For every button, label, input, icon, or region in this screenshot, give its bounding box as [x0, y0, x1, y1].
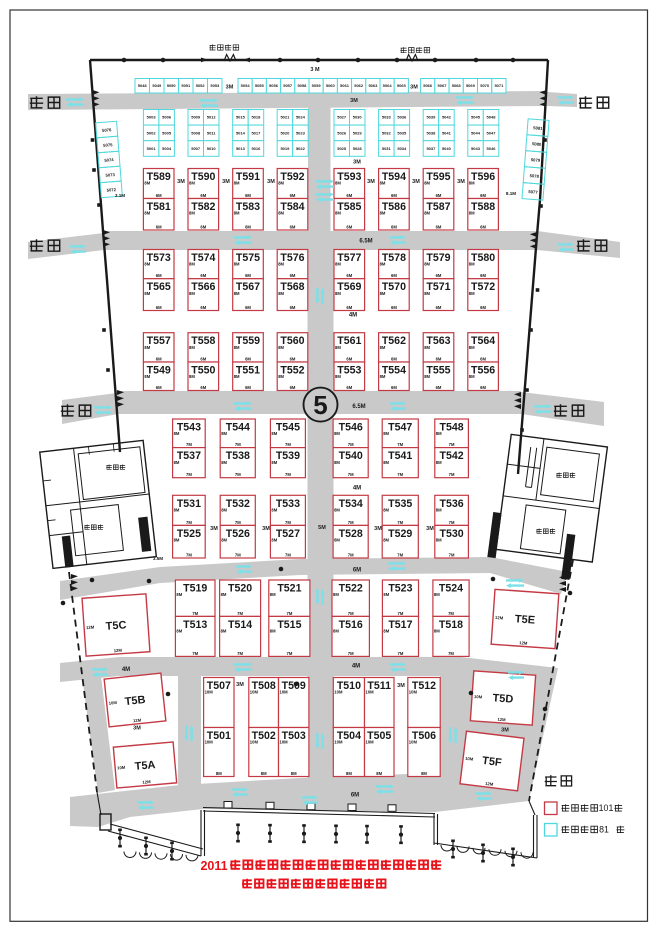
- svg-text:T540: T540: [339, 450, 363, 462]
- svg-text:3M: 3M: [374, 526, 382, 532]
- svg-text:5056: 5056: [269, 83, 279, 88]
- svg-text:6M: 6M: [245, 225, 251, 230]
- svg-text:7M: 7M: [286, 611, 292, 616]
- svg-text:8M: 8M: [469, 374, 475, 379]
- svg-text:6M: 6M: [391, 385, 397, 390]
- svg-text:5019: 5019: [280, 146, 290, 151]
- svg-text:4M: 4M: [122, 667, 130, 673]
- svg-text:5042: 5042: [442, 115, 452, 120]
- svg-text:7M: 7M: [397, 651, 403, 656]
- svg-text:3M: 3M: [210, 526, 218, 532]
- svg-text:8M: 8M: [278, 262, 284, 267]
- svg-text:5045: 5045: [471, 115, 481, 120]
- svg-text:8M: 8M: [380, 374, 386, 379]
- svg-text:8M: 8M: [383, 538, 389, 543]
- svg-text:8M: 8M: [261, 771, 267, 776]
- svg-text:T516: T516: [339, 619, 363, 631]
- svg-text:6M: 6M: [346, 273, 352, 278]
- svg-text:5014: 5014: [236, 130, 246, 135]
- svg-text:T576: T576: [280, 252, 304, 264]
- svg-text:7M: 7M: [285, 442, 291, 447]
- svg-text:4M: 4M: [349, 313, 357, 319]
- svg-text:5032: 5032: [382, 130, 392, 135]
- svg-text:7M: 7M: [285, 472, 291, 477]
- svg-text:8M: 8M: [424, 181, 430, 186]
- svg-text:8M: 8M: [469, 262, 475, 267]
- svg-text:10M: 10M: [250, 740, 259, 745]
- svg-text:6M: 6M: [200, 385, 206, 390]
- svg-text:8M: 8M: [334, 538, 340, 543]
- svg-text:T571: T571: [426, 281, 450, 293]
- svg-text:7M: 7M: [448, 651, 454, 656]
- svg-text:5063: 5063: [368, 83, 378, 88]
- svg-text:T533: T533: [276, 498, 300, 510]
- svg-text:T581: T581: [147, 201, 171, 213]
- svg-text:6M: 6M: [290, 385, 296, 390]
- svg-text:3M: 3M: [262, 526, 270, 532]
- svg-text:3M: 3M: [267, 179, 275, 185]
- svg-text:6M: 6M: [391, 193, 397, 198]
- svg-text:5053: 5053: [210, 83, 220, 88]
- svg-text:T5E: T5E: [514, 613, 535, 626]
- svg-text:8M: 8M: [335, 211, 341, 216]
- svg-text:8M: 8M: [270, 592, 276, 597]
- svg-text:8M: 8M: [189, 262, 195, 267]
- svg-text:5039: 5039: [426, 115, 436, 120]
- svg-text:T549: T549: [147, 365, 171, 377]
- svg-text:T587: T587: [426, 201, 450, 213]
- svg-text:5: 5: [313, 390, 327, 420]
- svg-text:8M: 8M: [144, 211, 150, 216]
- svg-text:5031: 5031: [382, 146, 392, 151]
- svg-text:5023: 5023: [296, 130, 306, 135]
- svg-text:7M: 7M: [237, 651, 243, 656]
- svg-text:7M: 7M: [348, 553, 354, 558]
- svg-text:8M: 8M: [434, 592, 440, 597]
- svg-text:10M: 10M: [280, 740, 289, 745]
- svg-text:5007: 5007: [191, 146, 201, 151]
- svg-text:5062: 5062: [354, 83, 364, 88]
- svg-text:5069: 5069: [466, 83, 476, 88]
- svg-text:T575: T575: [236, 252, 260, 264]
- svg-text:8M: 8M: [189, 345, 195, 350]
- svg-text:6M: 6M: [391, 225, 397, 230]
- svg-text:7M: 7M: [186, 520, 192, 525]
- svg-text:T546: T546: [339, 422, 363, 434]
- svg-text:4M: 4M: [352, 664, 360, 670]
- svg-text:8M: 8M: [424, 374, 430, 379]
- svg-text:T528: T528: [339, 528, 363, 540]
- svg-text:8M: 8M: [234, 374, 240, 379]
- svg-text:T558: T558: [191, 335, 215, 347]
- svg-text:8M: 8M: [271, 508, 277, 513]
- svg-text:5059: 5059: [312, 83, 322, 88]
- svg-text:8M: 8M: [424, 345, 430, 350]
- svg-text:8M: 8M: [334, 508, 340, 513]
- svg-text:8M: 8M: [469, 345, 475, 350]
- svg-text:7M: 7M: [235, 553, 241, 558]
- svg-text:7M: 7M: [449, 442, 455, 447]
- svg-text:T524: T524: [439, 583, 463, 595]
- svg-text:5003: 5003: [147, 115, 157, 120]
- svg-text:T518: T518: [439, 619, 463, 631]
- svg-text:10M: 10M: [334, 740, 343, 745]
- svg-text:5077: 5077: [528, 189, 538, 195]
- svg-text:8M: 8M: [271, 538, 277, 543]
- svg-text:T5C: T5C: [105, 619, 127, 632]
- svg-text:T594: T594: [382, 171, 406, 183]
- svg-text:8M: 8M: [291, 771, 297, 776]
- svg-text:5072: 5072: [106, 187, 116, 193]
- svg-text:7M: 7M: [186, 553, 192, 558]
- svg-text:5038: 5038: [426, 130, 436, 135]
- svg-text:T539: T539: [276, 450, 300, 462]
- svg-text:T541: T541: [388, 450, 412, 462]
- svg-text:8M: 8M: [144, 291, 150, 296]
- svg-text:T544: T544: [226, 422, 250, 434]
- svg-text:T563: T563: [426, 335, 450, 347]
- svg-text:6M: 6M: [346, 225, 352, 230]
- svg-text:5035: 5035: [397, 130, 407, 135]
- svg-text:8M: 8M: [221, 431, 227, 436]
- svg-text:6M: 6M: [436, 273, 442, 278]
- svg-text:10M: 10M: [205, 690, 214, 695]
- svg-text:5026: 5026: [337, 130, 347, 135]
- svg-text:7M: 7M: [235, 472, 241, 477]
- svg-text:8M: 8M: [189, 374, 195, 379]
- svg-text:5002: 5002: [147, 130, 157, 135]
- svg-text:T595: T595: [426, 171, 450, 183]
- svg-text:6M: 6M: [436, 357, 442, 362]
- svg-text:5013: 5013: [236, 146, 246, 151]
- svg-text:T574: T574: [191, 252, 215, 264]
- svg-text:8M: 8M: [380, 211, 386, 216]
- svg-text:5041: 5041: [442, 130, 452, 135]
- svg-text:T521: T521: [277, 583, 301, 595]
- svg-text:10M: 10M: [465, 756, 474, 762]
- svg-text:T526: T526: [226, 528, 250, 540]
- svg-text:5050: 5050: [167, 83, 177, 88]
- svg-text:101: 101: [599, 803, 614, 813]
- svg-text:5004: 5004: [162, 146, 172, 151]
- svg-text:5060: 5060: [326, 83, 336, 88]
- svg-text:T532: T532: [226, 498, 250, 510]
- svg-text:8M: 8M: [174, 460, 180, 465]
- svg-text:T583: T583: [236, 201, 260, 213]
- svg-text:12M: 12M: [133, 717, 142, 723]
- svg-text:T567: T567: [236, 281, 260, 293]
- svg-text:T554: T554: [382, 365, 406, 377]
- svg-text:8M: 8M: [380, 291, 386, 296]
- svg-text:8M: 8M: [380, 181, 386, 186]
- svg-text:5022: 5022: [296, 146, 306, 151]
- svg-text:7M: 7M: [192, 611, 198, 616]
- svg-text:81: 81: [599, 825, 609, 835]
- svg-text:T570: T570: [382, 281, 406, 293]
- svg-text:T559: T559: [236, 335, 260, 347]
- svg-text:T565: T565: [147, 281, 171, 293]
- svg-text:3M: 3M: [236, 682, 244, 688]
- svg-text:6M: 6M: [480, 273, 486, 278]
- svg-text:5052: 5052: [196, 83, 206, 88]
- svg-text:8M: 8M: [380, 345, 386, 350]
- svg-text:T527: T527: [276, 528, 300, 540]
- svg-text:T580: T580: [471, 252, 495, 264]
- svg-text:8M: 8M: [424, 291, 430, 296]
- svg-text:T543: T543: [177, 422, 201, 434]
- svg-text:5016: 5016: [251, 146, 261, 151]
- svg-text:7M: 7M: [397, 611, 403, 616]
- svg-text:6M: 6M: [346, 305, 352, 310]
- svg-text:8M: 8M: [436, 508, 442, 513]
- svg-text:T534: T534: [339, 498, 363, 510]
- svg-text:5009: 5009: [191, 115, 201, 120]
- svg-text:T552: T552: [280, 365, 304, 377]
- svg-text:T536: T536: [440, 498, 464, 510]
- svg-text:8M: 8M: [189, 291, 195, 296]
- svg-text:6M: 6M: [480, 305, 486, 310]
- svg-text:8M: 8M: [189, 181, 195, 186]
- svg-text:5005: 5005: [162, 130, 172, 135]
- svg-text:8M: 8M: [335, 181, 341, 186]
- svg-text:5080: 5080: [532, 141, 542, 147]
- svg-text:5018: 5018: [251, 115, 261, 120]
- svg-text:10M: 10M: [334, 690, 343, 695]
- svg-text:5058: 5058: [297, 83, 307, 88]
- svg-text:8M: 8M: [424, 262, 430, 267]
- svg-text:7M: 7M: [448, 611, 454, 616]
- svg-text:12M: 12M: [114, 648, 123, 654]
- svg-text:5025: 5025: [337, 146, 347, 151]
- svg-text:7M: 7M: [192, 651, 198, 656]
- svg-text:5051: 5051: [181, 83, 191, 88]
- svg-text:6M: 6M: [156, 385, 162, 390]
- svg-text:T579: T579: [426, 252, 450, 264]
- svg-text:8M: 8M: [335, 262, 341, 267]
- svg-text:8M: 8M: [436, 460, 442, 465]
- svg-text:4M: 4M: [353, 486, 361, 492]
- svg-text:T560: T560: [280, 335, 304, 347]
- svg-text:7M: 7M: [397, 442, 403, 447]
- svg-text:5044: 5044: [471, 130, 481, 135]
- svg-text:5071: 5071: [494, 83, 504, 88]
- svg-text:3M: 3M: [397, 683, 405, 689]
- svg-text:T564: T564: [471, 335, 495, 347]
- svg-text:5049: 5049: [152, 83, 162, 88]
- svg-text:7M: 7M: [235, 520, 241, 525]
- svg-text:12M: 12M: [497, 717, 506, 723]
- svg-text:8M: 8M: [278, 291, 284, 296]
- svg-text:5075: 5075: [103, 142, 113, 148]
- svg-text:10M: 10M: [366, 690, 375, 695]
- svg-text:T592: T592: [280, 171, 304, 183]
- svg-text:6M: 6M: [290, 193, 296, 198]
- svg-text:5030: 5030: [353, 115, 363, 120]
- svg-text:6M: 6M: [436, 305, 442, 310]
- svg-text:6M: 6M: [436, 193, 442, 198]
- svg-text:3M: 3M: [133, 726, 141, 732]
- svg-text:3M: 3M: [412, 179, 420, 185]
- svg-text:8M: 8M: [469, 291, 475, 296]
- svg-text:8M: 8M: [234, 291, 240, 296]
- svg-text:8M: 8M: [221, 538, 227, 543]
- svg-text:T553: T553: [337, 365, 361, 377]
- svg-text:3 M: 3 M: [310, 67, 320, 73]
- svg-text:T550: T550: [191, 365, 215, 377]
- svg-text:8M: 8M: [421, 771, 427, 776]
- svg-text:5076: 5076: [102, 127, 112, 133]
- svg-text:8.1M: 8.1M: [506, 191, 516, 196]
- svg-text:6M: 6M: [391, 305, 397, 310]
- svg-text:T593: T593: [337, 171, 361, 183]
- svg-text:8M: 8M: [436, 538, 442, 543]
- svg-text:3M: 3M: [177, 179, 185, 185]
- svg-text:T531: T531: [177, 498, 201, 510]
- svg-text:6M: 6M: [156, 225, 162, 230]
- svg-text:5070: 5070: [480, 83, 490, 88]
- svg-text:5017: 5017: [251, 130, 261, 135]
- svg-text:8M: 8M: [383, 508, 389, 513]
- svg-text:6M: 6M: [200, 193, 206, 198]
- svg-text:5057: 5057: [283, 83, 293, 88]
- svg-text:12M: 12M: [142, 779, 151, 785]
- svg-text:T547: T547: [388, 422, 412, 434]
- svg-text:T572: T572: [471, 281, 495, 293]
- svg-text:8M: 8M: [234, 262, 240, 267]
- svg-text:3M: 3M: [367, 179, 375, 185]
- svg-text:7M: 7M: [186, 472, 192, 477]
- svg-text:6M: 6M: [245, 305, 251, 310]
- svg-text:8M: 8M: [221, 592, 227, 597]
- svg-text:6M: 6M: [200, 273, 206, 278]
- svg-text:T542: T542: [440, 450, 464, 462]
- svg-text:7M: 7M: [449, 553, 455, 558]
- svg-text:6M: 6M: [290, 305, 296, 310]
- svg-text:5021: 5021: [280, 115, 290, 120]
- svg-text:10M: 10M: [474, 694, 483, 700]
- svg-text:5033: 5033: [382, 115, 392, 120]
- svg-text:T590: T590: [191, 171, 215, 183]
- svg-text:7M: 7M: [348, 442, 354, 447]
- svg-text:T568: T568: [280, 281, 304, 293]
- svg-text:7M: 7M: [397, 520, 403, 525]
- svg-text:T517: T517: [388, 619, 412, 631]
- svg-text:T5B: T5B: [124, 694, 146, 708]
- svg-text:5001: 5001: [147, 146, 157, 151]
- svg-text:T520: T520: [228, 583, 252, 595]
- svg-text:6M: 6M: [200, 225, 206, 230]
- svg-text:12M: 12M: [485, 781, 494, 787]
- svg-text:8M: 8M: [346, 771, 352, 776]
- svg-text:5024: 5024: [296, 115, 306, 120]
- svg-text:6M: 6M: [290, 273, 296, 278]
- svg-text:6M: 6M: [156, 193, 162, 198]
- svg-text:8M: 8M: [221, 508, 227, 513]
- svg-text:8M: 8M: [376, 771, 382, 776]
- svg-text:5074: 5074: [104, 157, 114, 163]
- svg-text:8M: 8M: [174, 538, 180, 543]
- svg-text:7M: 7M: [348, 611, 354, 616]
- svg-text:8M: 8M: [234, 345, 240, 350]
- svg-text:5006: 5006: [162, 115, 172, 120]
- svg-text:8M: 8M: [174, 508, 180, 513]
- svg-text:8M: 8M: [278, 211, 284, 216]
- svg-text:T588: T588: [471, 201, 495, 213]
- svg-text:7M: 7M: [348, 651, 354, 656]
- svg-text:6M: 6M: [245, 385, 251, 390]
- svg-text:8M: 8M: [383, 592, 389, 597]
- svg-text:T537: T537: [177, 450, 201, 462]
- svg-text:8M: 8M: [271, 460, 277, 465]
- svg-text:T515: T515: [277, 619, 301, 631]
- svg-text:6.5M: 6.5M: [352, 404, 365, 410]
- svg-text:8M: 8M: [335, 291, 341, 296]
- svg-text:8M: 8M: [424, 211, 430, 216]
- svg-text:T562: T562: [382, 335, 406, 347]
- svg-text:6M: 6M: [351, 793, 359, 799]
- svg-text:8M: 8M: [334, 460, 340, 465]
- svg-text:10M: 10M: [280, 690, 289, 695]
- svg-text:5027: 5027: [337, 115, 347, 120]
- svg-text:T591: T591: [236, 171, 260, 183]
- svg-text:7M: 7M: [285, 553, 291, 558]
- svg-text:5055: 5055: [255, 83, 265, 88]
- svg-text:3M: 3M: [226, 85, 234, 91]
- svg-text:T545: T545: [276, 422, 300, 434]
- svg-text:3M: 3M: [457, 179, 465, 185]
- svg-text:T530: T530: [440, 528, 464, 540]
- svg-text:6M: 6M: [391, 273, 397, 278]
- svg-text:7M: 7M: [397, 472, 403, 477]
- svg-text:T523: T523: [388, 583, 412, 595]
- svg-text:6M: 6M: [346, 357, 352, 362]
- svg-text:5040: 5040: [442, 146, 452, 151]
- svg-text:6M: 6M: [346, 193, 352, 198]
- svg-text:T589: T589: [147, 171, 171, 183]
- svg-text:8M: 8M: [221, 460, 227, 465]
- svg-text:5079: 5079: [531, 157, 541, 163]
- svg-text:T513: T513: [183, 619, 207, 631]
- svg-text:8M: 8M: [383, 460, 389, 465]
- svg-text:T555: T555: [426, 365, 450, 377]
- svg-text:5037: 5037: [426, 146, 436, 151]
- svg-text:5008: 5008: [191, 130, 201, 135]
- svg-text:6M: 6M: [200, 305, 206, 310]
- svg-text:7M: 7M: [235, 442, 241, 447]
- svg-text:10M: 10M: [117, 765, 126, 771]
- svg-text:7M: 7M: [449, 472, 455, 477]
- svg-text:12M: 12M: [495, 615, 504, 621]
- svg-text:8M: 8M: [333, 629, 339, 634]
- svg-text:7M: 7M: [237, 611, 243, 616]
- svg-text:5064: 5064: [383, 83, 393, 88]
- svg-text:5043: 5043: [471, 146, 481, 151]
- svg-text:T582: T582: [191, 201, 215, 213]
- svg-text:8M: 8M: [144, 374, 150, 379]
- svg-text:5012: 5012: [207, 115, 217, 120]
- svg-text:3M: 3M: [426, 526, 434, 532]
- svg-text:5054: 5054: [241, 83, 251, 88]
- svg-text:6M: 6M: [156, 273, 162, 278]
- svg-text:T5A: T5A: [134, 759, 156, 773]
- svg-text:10M: 10M: [205, 740, 214, 745]
- svg-text:10M: 10M: [409, 740, 418, 745]
- svg-text:8M: 8M: [176, 629, 182, 634]
- svg-text:8M: 8M: [144, 262, 150, 267]
- svg-text:8M: 8M: [144, 345, 150, 350]
- svg-text:12M: 12M: [519, 640, 528, 646]
- svg-text:3.1M: 3.1M: [115, 193, 125, 198]
